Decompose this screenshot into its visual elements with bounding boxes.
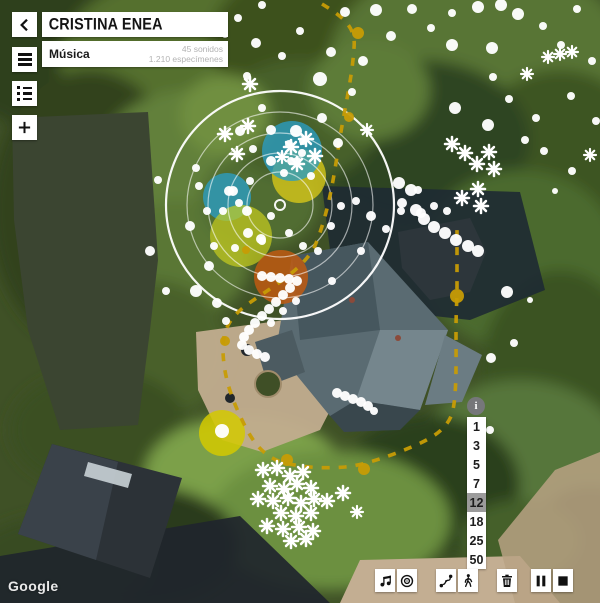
scale-value-5[interactable]: 5: [467, 455, 486, 474]
satellite-map[interactable]: [0, 0, 600, 603]
list-icon: [17, 86, 32, 101]
radius-scale: 135712182550: [467, 417, 486, 569]
hamburger-icon: [18, 53, 32, 66]
stats-text: 45 sonidos 1.210 especímenes: [149, 44, 228, 64]
music-icon: [377, 573, 393, 589]
scale-value-18[interactable]: 18: [467, 512, 486, 531]
scale-value-50[interactable]: 50: [467, 550, 486, 569]
pause-button[interactable]: [531, 569, 551, 592]
map-app: CRISTINA ENEA Música 45 sonidos 1.210 es…: [0, 0, 600, 603]
trash-icon: [499, 573, 515, 589]
list-button[interactable]: [12, 81, 37, 106]
pause-icon: [533, 573, 549, 589]
trash-button[interactable]: [497, 569, 517, 592]
chevron-left-icon: [17, 17, 33, 33]
stop-button[interactable]: [553, 569, 573, 592]
info-button[interactable]: i: [467, 397, 485, 415]
menu-button[interactable]: [12, 47, 37, 72]
zoom-in-button[interactable]: [12, 115, 37, 140]
target-icon: [399, 573, 415, 589]
page-title: CRISTINA ENEA: [42, 15, 163, 34]
scale-value-12[interactable]: 12: [467, 493, 486, 512]
back-button[interactable]: [12, 12, 37, 37]
walk-button[interactable]: [458, 569, 478, 592]
scale-value-3[interactable]: 3: [467, 436, 486, 455]
title-bar: CRISTINA ENEA: [42, 12, 228, 37]
bottom-toolbar: [375, 569, 573, 592]
sounds-count: 45 sonidos: [182, 44, 223, 54]
route-button[interactable]: [436, 569, 456, 592]
plus-icon: [17, 120, 32, 135]
target-button[interactable]: [397, 569, 417, 592]
music-button[interactable]: [375, 569, 395, 592]
route-icon: [438, 573, 454, 589]
scale-value-1[interactable]: 1: [467, 417, 486, 436]
scale-value-7[interactable]: 7: [467, 474, 486, 493]
category-label: Música: [42, 47, 90, 61]
stop-icon: [555, 573, 571, 589]
google-attribution: Google: [8, 578, 59, 594]
walk-icon: [460, 573, 476, 589]
subtitle-bar: Música 45 sonidos 1.210 especímenes: [42, 41, 228, 67]
scale-value-25[interactable]: 25: [467, 531, 486, 550]
specimens-count: 1.210 especímenes: [149, 54, 223, 64]
